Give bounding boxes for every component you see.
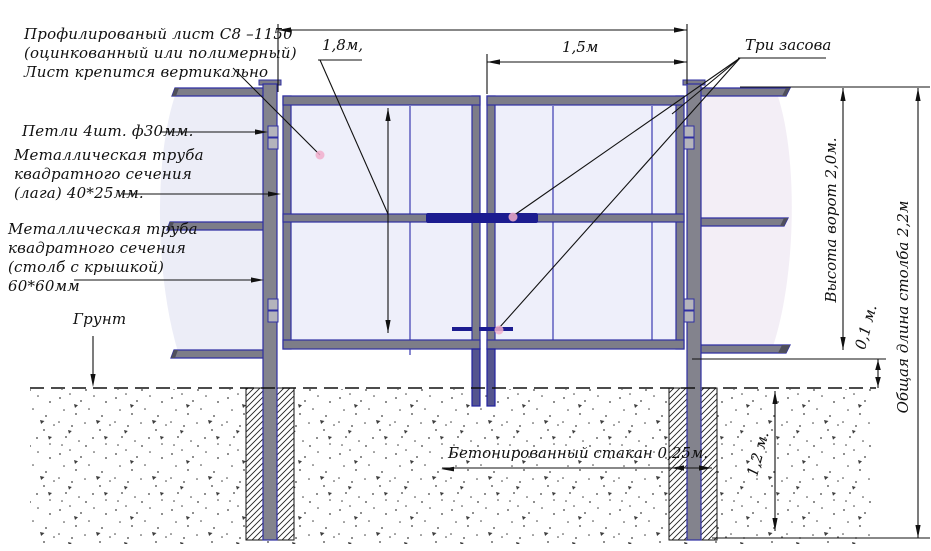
latches-label: Три засова [745, 36, 831, 54]
profiled-sheet-label-line2: (оцинкованный или полимерный) [24, 44, 297, 63]
leaf-height-dimension: 1,8м, [322, 36, 363, 54]
profiled-sheet-label-line1: Профилированый лист С8 –1150 [24, 25, 297, 44]
gate-left-leaf [283, 96, 480, 355]
lag-tube-label-line3: (лага) 40*25мм. [14, 184, 204, 203]
post-tube-label-line4: 60*60мм [8, 277, 198, 296]
post-tube-label-line2: квадратного сечения [8, 239, 198, 258]
lag-tube-label-line2: квадратного сечения [14, 165, 204, 184]
gate-technical-drawing: Профилированый лист С8 –1150 (оцинкованн… [0, 0, 931, 551]
profiled-sheet-label: Профилированый лист С8 –1150 (оцинкованн… [24, 25, 297, 82]
post-tube-label: Металлическая труба квадратного сечения … [8, 220, 198, 296]
profiled-sheet-label-line3: Лист крепится вертикально [24, 63, 297, 82]
middle-latch [426, 213, 538, 223]
lag-tube-label: Металлическая труба квадратного сечения … [14, 146, 204, 203]
leaf-width-dimension: 1,5м [562, 38, 598, 56]
gate-height-dimension: Высота ворот 2,0м. [822, 120, 840, 320]
ground-label: Грунт [73, 310, 126, 329]
lower-latch [452, 327, 513, 331]
post-tube-label-line1: Металлическая труба [8, 220, 198, 239]
post-length-dimension: Общая длина столба 2,2м [894, 192, 912, 422]
post-tube-label-line3: (столб с крышкой) [8, 258, 198, 277]
foundation-label: Бетонированный стакан 0,25м. [448, 444, 708, 462]
lag-tube-label-line1: Металлическая труба [14, 146, 204, 165]
hinges-label: Петли 4шт. ф30мм. [22, 122, 194, 141]
